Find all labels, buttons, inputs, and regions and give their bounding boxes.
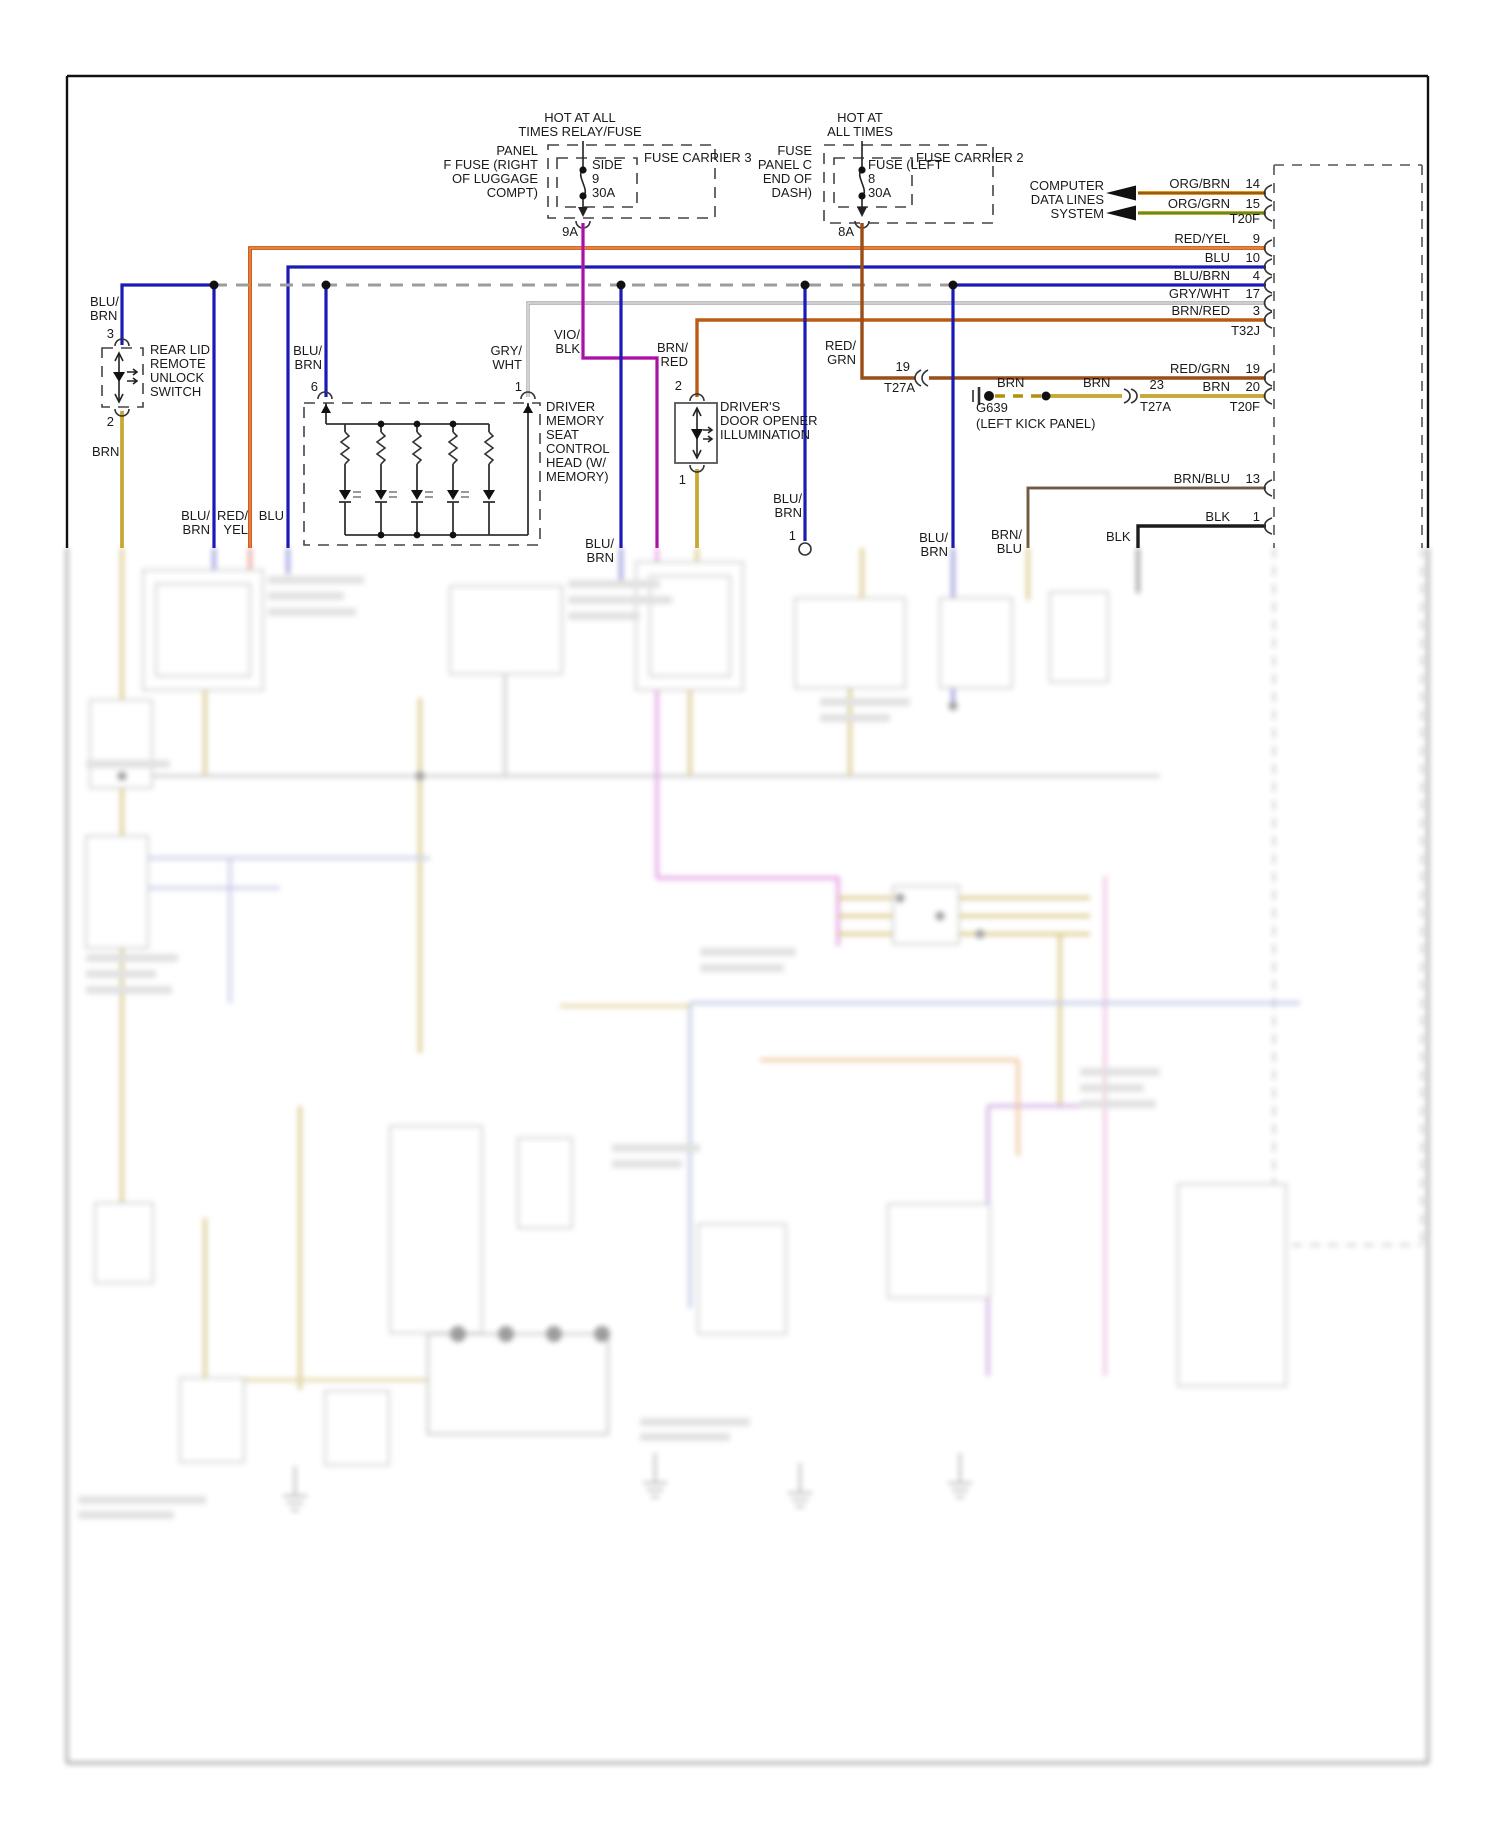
t27a-label: T27A [1140,400,1171,414]
connector-pin-circle [799,543,811,555]
red-grn-label: RED/ GRN [806,339,856,367]
connector-id-t20f: T20F [1200,212,1260,226]
pin-wire-label: ORG/BRN [1126,177,1230,191]
pin-number: 9 [1234,232,1260,246]
ground-location: (LEFT KICK PANEL) [976,417,1095,431]
riser-brnblu-label: BRN/ BLU [980,528,1022,556]
door-pin-top: 2 [668,379,682,393]
pin-wire-label: BLU/BRN [1126,269,1230,283]
pin-number: 19 [1234,362,1260,376]
door-wire-top: BRN/ RED [642,341,688,369]
rear-lid-wire-bottom: BRN [92,445,119,459]
riser-blubrn-door-label: BLU/ BRN [760,492,802,520]
ground-id: G639 [976,401,1008,415]
seat-control-head-box [304,392,540,545]
pin-wire-label: BLK [1126,510,1230,524]
right-connector-outline [1274,165,1422,548]
pin-wire-label: GRY/WHT [1126,287,1230,301]
fuse2-panel-label: FUSE PANEL C END OF DASH) [718,144,812,200]
riser-blu-label: BLU [246,509,284,523]
riser-blubrn-mid-label: BLU/ BRN [578,537,614,565]
wiring-diagram-page: HOT AT ALL TIMES RELAY/FUSE PANEL F FUSE… [0,0,1500,1828]
fuse-output-arrow [578,207,588,217]
diode-symbols [339,490,495,502]
riser-blubrn-right-label: BLU/ BRN [906,531,948,559]
fuse2-fuse-label: FUSE (LEFT 8 30A [868,158,942,200]
t27a-label: T27A [884,381,915,395]
pin-wire-label: RED/GRN [1126,362,1230,376]
pin-number: 17 [1234,287,1260,301]
riser-blubrn-label: BLU/ BRN [168,509,210,537]
vio-blk-label: VIO/ BLK [538,328,580,356]
seat-wire-left: BLU/ BRN [280,344,322,372]
t27a-pin-19: 19 [884,360,910,374]
ground-wire-label: BRN [1083,376,1110,390]
pin-wire-label: BRN/RED [1126,304,1230,318]
pin-number: 1 [1234,510,1260,524]
pin-number: 20 [1234,380,1260,394]
fuse3-output-label: 9A [538,225,578,239]
pin-wire-label: BRN/BLU [1126,472,1230,486]
pin-wire-label: ORG/GRN [1126,197,1230,211]
fuse3-hot-label: HOT AT ALL TIMES RELAY/FUSE [470,111,690,139]
fuse3-panel-label: PANEL F FUSE (RIGHT OF LUGGAGE COMPT) [398,144,538,200]
connector-id-t20f: T20F [1200,400,1260,414]
rear-lid-pin-top: 3 [96,327,114,341]
pin-number: 10 [1234,251,1260,265]
fuse2-output-label: 8A [814,225,854,239]
computer-data-lines-label: COMPUTER DATA LINES SYSTEM [998,179,1104,221]
rear-lid-wire-top: BLU/ BRN [90,295,119,323]
seat-pin-right: 1 [500,380,522,394]
resistor-symbols [341,432,493,464]
pin-number: 4 [1234,269,1260,283]
pin-wire-label: RED/YEL [1126,232,1230,246]
seat-control-head-name: DRIVER MEMORY SEAT CONTROL HEAD (W/ MEMO… [546,400,610,484]
rear-lid-switch-name: REAR LID REMOTE UNLOCK SWITCH [150,343,210,399]
fuse3-fuse-label: SIDE 9 30A [592,158,622,200]
pin-number: 3 [1234,304,1260,318]
riser-blk-label: BLK [1106,530,1131,544]
door-opener-illumination-box [675,394,717,472]
inline-connector-t27a-19 [915,370,928,386]
connector-id-t32j: T32J [1200,324,1260,338]
right-connector-pin-arcs [1265,185,1273,534]
rear-lid-switch-box [102,339,143,416]
ground-wire-label: BRN [997,376,1024,390]
fuse2-hot-label: HOT AT ALL TIMES [760,111,960,139]
pin-wire-label: BLU [1126,251,1230,265]
riser-redyel-label: RED/ YEL [206,509,248,537]
seat-wire-right: GRY/ WHT [480,344,522,372]
pin-number: 15 [1234,197,1260,211]
door-pin-bottom: 1 [672,473,686,487]
seat-pin-left: 6 [296,380,318,394]
door-opener-name: DRIVER'S DOOR OPENER ILLUMINATION [720,400,818,442]
pin-number: 14 [1234,177,1260,191]
t27a-pin-23: 23 [1138,378,1164,392]
pin-number: 13 [1234,472,1260,486]
fuse-output-arrow [857,207,867,217]
wiring-diagram-canvas [0,0,1500,1828]
riser-blubrn-door-pin: 1 [782,529,796,543]
rear-lid-pin-bottom: 2 [96,415,114,429]
